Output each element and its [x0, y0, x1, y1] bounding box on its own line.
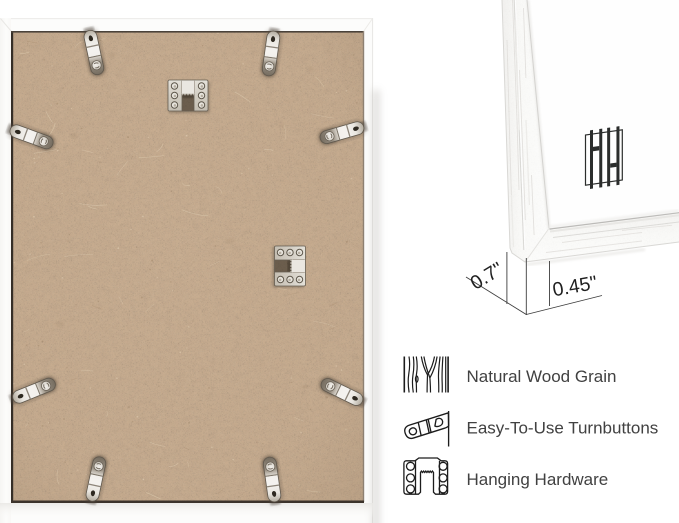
svg-text:Natural Wood Grain: Natural Wood Grain [467, 367, 617, 386]
svg-text:Easy-To-Use Turnbuttons: Easy-To-Use Turnbuttons [467, 419, 659, 438]
svg-text:0.45": 0.45" [551, 272, 599, 301]
svg-text:Hanging Hardware: Hanging Hardware [467, 470, 609, 489]
svg-text:0.7": 0.7" [467, 258, 508, 294]
